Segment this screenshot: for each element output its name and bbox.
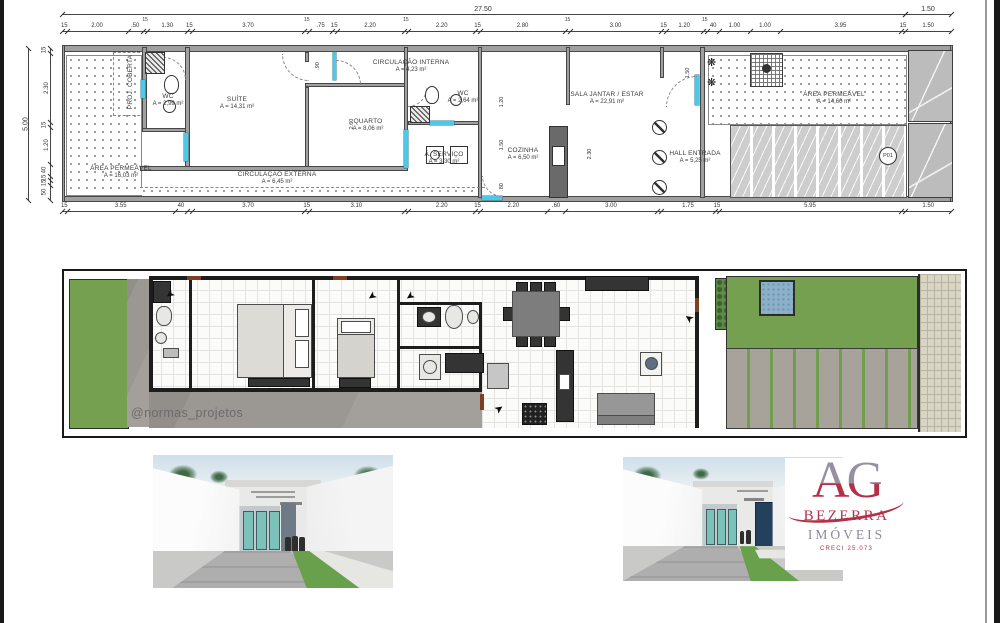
wall-kitchen <box>479 302 482 392</box>
dim-label: 2.30 <box>44 82 50 94</box>
dim-tick <box>903 12 909 18</box>
gate-panel-upper <box>908 50 953 122</box>
dim-label: 2.00 <box>91 23 103 29</box>
dim-label: 15 <box>142 18 148 23</box>
dining-chair <box>516 336 528 347</box>
dim-tick <box>307 29 313 35</box>
plant-icon: ❋ <box>707 58 716 69</box>
watermark-text: @normas_projetos <box>131 406 243 420</box>
wall-bath1 <box>189 276 192 390</box>
dim-sidewalk-width: 1.50 <box>921 6 935 13</box>
front-grass <box>726 276 918 350</box>
dim-label: 40 <box>710 23 717 29</box>
technical-floor-plan: 27.50 1.50 152.00.50151.30153.7015.75152… <box>0 0 1000 240</box>
dim-tick <box>717 29 723 35</box>
logo-creci: CRECI 25.073 <box>820 546 873 552</box>
glass-door <box>243 511 254 550</box>
permeable-area-right <box>708 55 907 125</box>
lamp <box>645 357 658 370</box>
backyard-grass <box>69 279 129 429</box>
room-label-permeavel-right: ÁREA PERMEÁVEL A = 14,60 m² <box>803 91 865 107</box>
dim-label: 15 <box>61 203 68 209</box>
glass-door <box>706 509 715 544</box>
toilet-1 <box>156 306 172 326</box>
wall-top <box>62 45 953 52</box>
dim-tick <box>60 12 66 18</box>
wall-bath2-laundry <box>400 346 482 349</box>
front-driveway <box>726 348 918 429</box>
dim-label: 15 <box>331 23 338 29</box>
suite-pillow-1 <box>295 309 309 337</box>
plant-icon: ❋ <box>707 78 716 89</box>
shower-2-base <box>422 311 436 323</box>
side-path-concrete <box>127 279 149 427</box>
dim-label: 3.70 <box>242 203 254 209</box>
dim-label: 15 <box>186 23 193 29</box>
dining-chair <box>530 336 542 347</box>
room-label-permeavel-left: ÁREA PERMEÁVEL A = 16,03 m² <box>90 165 152 181</box>
dim-tick <box>173 209 179 215</box>
dim-label: 3.70 <box>242 23 254 29</box>
dim-label: 2.80 <box>517 23 529 29</box>
dim-label: 1.75 <box>682 203 694 209</box>
dim-chain-bottom: 153.5540153.70153.10152.20152.20.603.001… <box>62 211 951 212</box>
room-label-wc1: WC A = 2,99 m² <box>153 93 184 109</box>
dim-label: 15 <box>303 203 310 209</box>
dim-label: 1.00 <box>759 23 771 29</box>
interior-dim: 1.50 <box>499 140 505 151</box>
dim-label: 15 <box>61 23 68 29</box>
dim-tick <box>478 29 484 35</box>
decor-vase <box>292 536 298 552</box>
dim-tick <box>563 209 569 215</box>
facade-sign <box>744 498 764 501</box>
room-label-circ-interna: CIRCULAÇÃO INTERNA A = 4,23 m² <box>373 59 450 75</box>
column-2 <box>652 150 667 165</box>
fridge <box>487 363 509 389</box>
dim-label: 1.30 <box>161 23 173 29</box>
dim-label: 50 <box>41 189 47 196</box>
dim-label: 3.00 <box>610 23 622 29</box>
glass-door <box>269 511 280 550</box>
quarto-dresser <box>339 378 371 388</box>
dim-label: 1.20 <box>44 139 50 151</box>
image-border-right-thin <box>985 0 987 623</box>
wall-suite-quarto <box>305 87 309 171</box>
toilet-wc1 <box>164 75 179 94</box>
room-label-cozinha: COZINHA A = 6,50 m² <box>508 147 539 163</box>
window-suite <box>184 133 188 161</box>
dim-label: 2.20 <box>436 23 448 29</box>
dim-label: 3.95 <box>835 23 847 29</box>
room-label-servico: Á. SERVIÇO A = 3,30 m² <box>424 151 463 167</box>
facade-louver <box>737 490 768 492</box>
sink-1 <box>155 332 167 344</box>
dim-label: .50 <box>131 23 139 29</box>
interior-dim: .90 <box>315 62 321 70</box>
dim-chain-left: 152.30151.2040151550 <box>50 48 51 200</box>
dim-tick <box>778 29 784 35</box>
tv-console <box>585 276 649 291</box>
dim-tick <box>567 29 573 35</box>
suite-bench <box>248 378 310 387</box>
dim-label: 15 <box>41 179 47 186</box>
sink-2 <box>467 310 479 324</box>
wall-wc1-bottom <box>142 128 190 132</box>
washer-drum-2 <box>423 360 437 374</box>
facade-louver <box>256 496 294 498</box>
dim-label: 1.20 <box>678 23 690 29</box>
door-arc-quarto <box>336 60 361 85</box>
toilet-wc2 <box>425 86 439 104</box>
shower-wc2 <box>410 106 430 123</box>
room-label-quarto: QUARTO A = 8,06 m² <box>353 118 384 134</box>
dining-chair <box>544 336 556 347</box>
dim-label: 15 <box>702 18 708 23</box>
suite-blanket <box>237 304 284 378</box>
dim-label: .60 <box>552 203 560 209</box>
dim-tick <box>664 29 670 35</box>
toilet-2 <box>445 305 463 329</box>
dim-label: 5.95 <box>804 203 816 209</box>
sidewalk-paved <box>918 274 961 432</box>
dim-tick <box>949 209 955 215</box>
interior-dim: 2.30 <box>587 149 593 160</box>
door-tag-p01: P01 <box>879 147 897 165</box>
water-feature <box>759 280 795 316</box>
dim-tick <box>747 29 753 35</box>
gate-panel-lower <box>908 123 953 198</box>
quarto-blanket <box>337 334 375 378</box>
wall-sala-hall <box>660 47 664 78</box>
bath-rug <box>163 348 179 358</box>
dim-tick <box>26 46 32 52</box>
dim-tick <box>307 209 313 215</box>
dim-label: 15 <box>474 23 481 29</box>
dim-label: 3.55 <box>115 203 127 209</box>
suite-pillow-2 <box>295 340 309 368</box>
quarto-pillow <box>341 321 371 333</box>
wall-quarto-bath2 <box>397 276 400 390</box>
dim-overall-height: 5.00 <box>22 117 29 131</box>
room-label-suite: SUÍTE A = 14,31 m² <box>220 96 254 112</box>
dim-label: 3.00 <box>605 203 617 209</box>
dim-label: 40 <box>178 203 185 209</box>
dim-label: 15 <box>900 23 907 29</box>
dim-tick <box>48 198 54 204</box>
shower-wc1 <box>145 52 165 74</box>
furnished-floor-plan: ➤ ➤ ➤ ➤ ➤ @normas_projetos <box>62 269 967 438</box>
dim-tick <box>478 209 484 215</box>
interior-dim: 2.60 <box>349 119 355 130</box>
room-label-hall: HALL ENTRADA A = 5,25 m² <box>669 150 720 166</box>
dim-tick <box>48 161 54 167</box>
island-sink <box>559 374 570 390</box>
dim-tick <box>125 29 131 35</box>
dim-label: 3.10 <box>350 203 362 209</box>
column-3 <box>652 180 667 195</box>
image-border-left <box>0 0 4 623</box>
dim-tick <box>48 125 54 131</box>
dim-tick <box>545 209 551 215</box>
window-wc2 <box>430 121 454 125</box>
wall-house-right <box>700 47 705 198</box>
yard-floor <box>153 551 393 588</box>
dim-overall-width: 27.50 <box>474 6 492 13</box>
dining-table <box>512 291 560 337</box>
permeable-strip-bottom <box>140 187 480 195</box>
glass-door <box>728 509 737 544</box>
room-label-circ-externa: CIRCULAÇÃO EXTERNA A = 6,45 m² <box>238 171 317 187</box>
decor-vase <box>746 530 751 544</box>
dim-label: .75 <box>316 23 324 29</box>
logo-type: IMÓVEIS <box>808 527 885 543</box>
door-header-service <box>480 394 484 410</box>
dim-label: 2.20 <box>436 203 448 209</box>
dim-tick <box>26 198 32 204</box>
dim-label: 15 <box>565 18 571 23</box>
door-header-quarto <box>333 276 347 280</box>
dim-label: 15 <box>304 18 310 23</box>
paver-hatch <box>731 126 906 197</box>
door-arc-suite <box>282 54 309 81</box>
furnished-plan-inner: ➤ ➤ ➤ ➤ ➤ @normas_projetos <box>67 274 961 432</box>
dim-label: 2.20 <box>508 203 520 209</box>
dining-chair <box>559 307 570 321</box>
facade-louver <box>251 491 294 493</box>
dim-tick <box>949 12 955 18</box>
room-label-sala: SALA JANTAR / ESTAR A = 22,91 m² <box>570 91 643 107</box>
page-canvas: 27.50 1.50 152.00.50151.30153.7015.75152… <box>0 0 1000 623</box>
house-wall-bottom-left <box>149 388 482 392</box>
agency-logo: AG BEZERRA IMÓVEIS CRECI 25.073 <box>785 458 908 570</box>
interior-dim: 1.50 <box>685 68 691 79</box>
dim-line-overall-width: 27.50 <box>62 14 905 15</box>
wall-suite-quarto-2 <box>312 276 315 390</box>
circ-externa-boundary <box>140 187 485 188</box>
dim-tick <box>949 29 955 35</box>
dim-label: 15 <box>660 23 667 29</box>
dim-label: 15 <box>41 47 47 54</box>
room-label-proj-coberta: PROJ. COBERTA <box>127 55 135 109</box>
room-label-wc2: WC A = 2,64 m² <box>448 90 479 106</box>
dim-label: 1.00 <box>729 23 741 29</box>
sink-cozinha <box>552 146 565 166</box>
dim-line-overall-height: 5.00 <box>28 48 29 200</box>
dim-label: 40 <box>41 166 47 173</box>
door-tag-label: P01 <box>883 153 893 159</box>
dim-chain-top: 152.00.50151.30153.7015.75152.20152.2015… <box>62 31 951 32</box>
trash-grid <box>522 403 547 425</box>
dim-label: 15 <box>714 203 721 209</box>
dim-label: 1.50 <box>922 23 934 29</box>
cistern-cap <box>762 64 771 73</box>
sofa-back <box>597 415 655 425</box>
wall-left-lot <box>62 45 65 202</box>
glass-door <box>256 511 267 550</box>
glass-door <box>717 509 726 544</box>
door-header-hall <box>695 298 699 312</box>
interior-dim: .80 <box>499 183 505 191</box>
dim-label: 2.20 <box>364 23 376 29</box>
decor-vase <box>740 531 745 543</box>
dim-label: 15 <box>474 203 481 209</box>
window-wc1 <box>141 80 145 98</box>
laundry-counter <box>445 353 484 373</box>
interior-dim: 1.20 <box>499 97 505 108</box>
dim-label: 15 <box>403 18 409 23</box>
door-arc-hall <box>666 76 697 107</box>
dim-line-sidewalk: 1.50 <box>905 14 951 15</box>
column-1 <box>652 120 667 135</box>
window-servico <box>404 130 408 168</box>
image-border-right <box>994 0 1000 623</box>
facade-render-1 <box>153 455 393 588</box>
dim-label: 1.50 <box>922 203 934 209</box>
door-header-suite <box>187 276 201 280</box>
